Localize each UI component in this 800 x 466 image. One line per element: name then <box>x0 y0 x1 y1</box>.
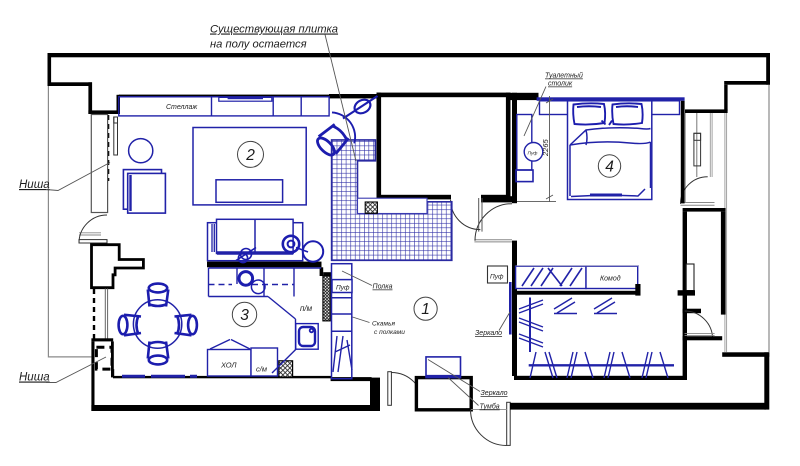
svg-text:4: 4 <box>605 159 614 176</box>
svg-text:на полу остается: на полу остается <box>210 39 307 51</box>
svg-text:с/м: с/м <box>256 365 267 374</box>
svg-text:Зеркало: Зеркало <box>475 330 502 337</box>
svg-text:Туалетный: Туалетный <box>545 72 583 80</box>
svg-text:Ниша: Ниша <box>19 372 50 384</box>
svg-text:столик: столик <box>548 81 573 88</box>
svg-text:2265: 2265 <box>541 138 550 157</box>
svg-text:с полками: с полками <box>374 329 405 336</box>
svg-text:1: 1 <box>421 301 430 318</box>
svg-text:Ниша: Ниша <box>19 179 50 191</box>
svg-text:Пуф: Пуф <box>490 274 504 281</box>
svg-text:Полка: Полка <box>373 284 393 291</box>
svg-text:Стеллаж: Стеллаж <box>166 104 198 111</box>
svg-text:2: 2 <box>245 147 255 164</box>
svg-text:Существующая плитка: Существующая плитка <box>210 24 338 36</box>
svg-text:Скамья: Скамья <box>372 321 396 328</box>
svg-text:п/м: п/м <box>300 304 313 313</box>
svg-text:3: 3 <box>240 307 249 324</box>
svg-text:Комод: Комод <box>600 275 621 283</box>
svg-text:Тумба: Тумба <box>480 403 500 411</box>
svg-text:Пуф: Пуф <box>336 285 350 292</box>
svg-text:ХОЛ: ХОЛ <box>220 361 237 370</box>
svg-text:Зеркало: Зеркало <box>481 390 508 397</box>
svg-text:Пуф: Пуф <box>528 151 538 157</box>
